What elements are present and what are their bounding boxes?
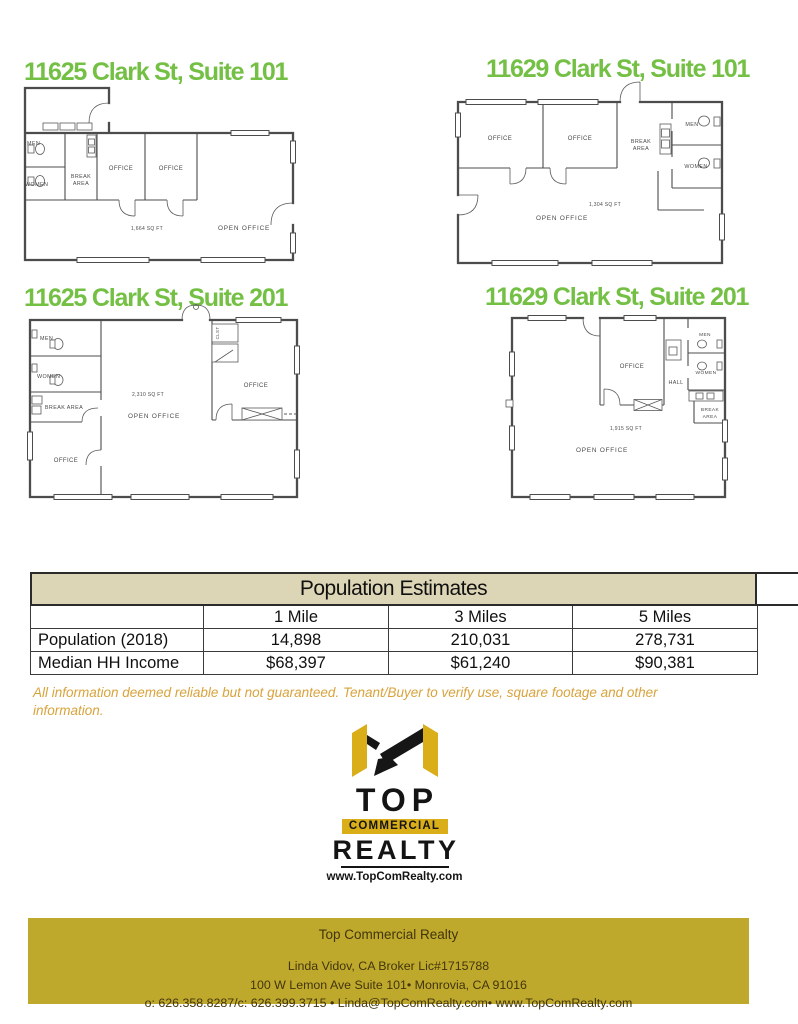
room-label-open-office: OPEN OFFICE: [536, 215, 588, 222]
window: [510, 426, 515, 450]
sqft-label: 1,664 SQ FT: [131, 226, 163, 232]
window: [528, 316, 566, 321]
window: [231, 131, 269, 136]
sink: [89, 147, 95, 153]
window: [295, 450, 300, 478]
break-counter: [32, 406, 41, 414]
room-label-office: OFFICE: [488, 136, 512, 142]
break-counter: [660, 124, 671, 154]
floorplan-11625-suite-201: MEN WOMEN BREAK AREA OFFICE OFFICE CLST …: [26, 300, 302, 500]
room-label-men: MEN: [40, 336, 53, 342]
room-label-open-office: OPEN OFFICE: [576, 447, 628, 454]
sink: [707, 393, 714, 399]
window: [466, 100, 526, 105]
room-label-closet: CLST: [215, 327, 220, 340]
vestibule-counter: [60, 123, 75, 130]
room-label-break: BREAK AREA: [45, 405, 83, 411]
income-5miles: $90,381: [573, 652, 758, 675]
room-label-break: AREA: [703, 414, 718, 420]
sqft-label: 1,304 SQ FT: [589, 202, 621, 208]
flyer-page: 11625 Clark St, Suite 101 11629 Clark St…: [0, 0, 798, 1024]
window: [131, 495, 189, 500]
room-label-men: MEN: [685, 122, 698, 128]
window: [236, 318, 281, 323]
window: [594, 495, 634, 500]
window: [54, 495, 112, 500]
toilet-tank: [717, 340, 722, 348]
logo-word-realty: REALTY: [315, 836, 477, 864]
window: [723, 420, 728, 442]
room-label-women: WOMEN: [37, 374, 60, 380]
plan-title-11625-101: 11625 Clark St, Suite 101: [24, 58, 287, 87]
room-label-men: MEN: [699, 332, 711, 338]
sink: [89, 139, 95, 145]
window: [656, 495, 694, 500]
sink: [32, 330, 37, 338]
room-label-office: OFFICE: [159, 166, 183, 172]
sink: [32, 364, 37, 372]
top-commercial-realty-logo: TOP COMMERCIAL REALTY www.TopComRealty.c…: [312, 723, 477, 883]
income-3miles: $61,240: [389, 652, 573, 675]
room-label-break: AREA: [633, 146, 649, 152]
toilet-icon: [698, 340, 707, 348]
window: [530, 495, 570, 500]
population-5miles: 278,731: [573, 629, 758, 652]
room-label-office: OFFICE: [244, 383, 268, 389]
sink: [662, 140, 670, 148]
window: [720, 214, 725, 240]
room-label-open-office: OPEN OFFICE: [218, 225, 270, 232]
room-label-hall: HALL: [668, 380, 683, 386]
room-label-office: OFFICE: [54, 458, 78, 464]
footer-broker-line: Linda Vidov, CA Broker Lic#1715788: [28, 957, 749, 976]
logo-website: www.TopComRealty.com: [312, 871, 477, 883]
closet: [212, 344, 238, 362]
break-counter: [32, 396, 42, 404]
floorplan-11629-suite-201: OFFICE HALL MEN WOMEN BREAK AREA 1,915 S…: [506, 308, 728, 504]
room-label-break: AREA: [73, 181, 89, 187]
room-label-office: OFFICE: [620, 364, 644, 370]
room-label-break: BREAK: [631, 139, 651, 145]
logo-word-commercial: COMMERCIAL: [342, 819, 448, 834]
row-label-income: Median HH Income: [31, 652, 204, 675]
break-counter: [87, 135, 96, 157]
footer-address-line: 100 W Lemon Ave Suite 101• Monrovia, CA …: [28, 976, 749, 995]
population-1mile: 14,898: [204, 629, 389, 652]
window: [291, 141, 296, 163]
window: [592, 261, 652, 266]
sink: [662, 129, 670, 137]
room-label-women: WOMEN: [696, 370, 717, 376]
window: [492, 261, 558, 266]
logo-word-top: TOP: [318, 784, 477, 816]
window: [221, 495, 273, 500]
room-label-break: BREAK: [701, 407, 720, 413]
disclaimer-text: All information deemed reliable but not …: [33, 684, 688, 719]
room-label-men: MEN: [27, 141, 40, 147]
break-counter: [689, 391, 723, 401]
window: [201, 258, 265, 263]
footer-band: Top Commercial Realty Linda Vidov, CA Br…: [28, 918, 749, 1004]
room-label-open-office: OPEN OFFICE: [128, 413, 180, 420]
window: [291, 233, 296, 253]
sink: [669, 347, 677, 355]
window: [295, 346, 300, 374]
window: [456, 113, 461, 137]
column-header-5miles: 5 Miles: [573, 606, 758, 629]
sink: [696, 393, 703, 399]
window: [538, 100, 598, 105]
room-label-women: WOMEN: [684, 164, 707, 170]
window: [723, 458, 728, 480]
room-label-office: OFFICE: [109, 166, 133, 172]
wall-fixture: [506, 400, 513, 407]
window: [510, 352, 515, 376]
row-label-population: Population (2018): [31, 629, 204, 652]
floorplan-11629-suite-101: OFFICE OFFICE BREAK AREA MEN WOMEN 1,304…: [452, 79, 728, 275]
toilet-tank: [717, 362, 722, 370]
toilet-icon: [698, 362, 707, 370]
window: [28, 432, 33, 460]
table-extra-cell: [757, 572, 798, 606]
population-estimates-table: Population Estimates 1 Mile 3 Miles 5 Mi…: [30, 572, 757, 675]
footer-contact-line: o: 626.358.8287/c: 626.399.3715 • Linda@…: [28, 994, 749, 1013]
footer-company-name: Top Commercial Realty: [28, 918, 749, 942]
vestibule-counter: [77, 123, 92, 130]
column-header-1mile: 1 Mile: [204, 606, 389, 629]
sqft-label: 2,310 SQ FT: [132, 392, 164, 398]
window: [77, 258, 149, 263]
population-3miles: 210,031: [389, 629, 573, 652]
toilet-tank: [714, 117, 720, 126]
logo-rule: [341, 866, 449, 868]
sqft-label: 1,915 SQ FT: [610, 426, 642, 432]
column-header: [31, 606, 204, 629]
toilet-icon: [699, 116, 710, 126]
column-header-3miles: 3 Miles: [389, 606, 573, 629]
window: [624, 316, 656, 321]
income-1mile: $68,397: [204, 652, 389, 675]
room-label-break: BREAK: [71, 174, 91, 180]
logo-mark-icon: [350, 723, 440, 781]
room-label-women: WOMEN: [25, 182, 48, 188]
floorplan-11625-suite-101: MEN WOMEN BREAK AREA OFFICE OFFICE 1,664…: [19, 85, 295, 269]
vestibule-counter: [43, 123, 58, 130]
room-label-office: OFFICE: [568, 136, 592, 142]
table-title: Population Estimates: [30, 572, 757, 606]
toilet-tank: [714, 159, 720, 168]
